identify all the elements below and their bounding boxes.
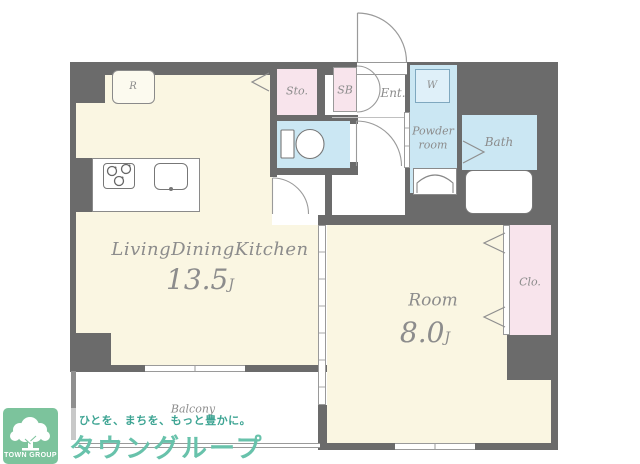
label-entrance: Ent.: [380, 87, 405, 99]
room-size-value: 8.0: [400, 316, 445, 349]
logo-box: TOWN GROUP: [3, 408, 58, 464]
label-storage: Sto.: [286, 86, 308, 97]
label-room-size: 8.0J: [400, 319, 450, 347]
label-closet: Clo.: [519, 277, 541, 288]
ldk-size-value: 13.5: [166, 263, 228, 296]
tree-icon: [3, 410, 58, 454]
sink-faucet-icon: [169, 187, 173, 191]
label-bath: Bath: [485, 136, 514, 148]
closet-folding-door-top-icon: [484, 233, 505, 253]
shoebox-doors-icon: [357, 66, 380, 112]
partition-ticks: [319, 252, 325, 387]
storage-folding-door-icon: [252, 73, 269, 91]
toilet-fixture-icon: [281, 130, 324, 159]
toilet-door-icon: [357, 121, 402, 166]
closet-folding-door-bottom-icon: [484, 307, 505, 327]
brand-company: タウングループ: [69, 428, 263, 464]
plan-symbols-layer: [0, 0, 640, 464]
stove-burners-icon: [108, 165, 131, 186]
label-washer: W: [427, 81, 437, 91]
bath-folding-door-icon: [463, 141, 484, 163]
washbasin-arch-icon: [417, 175, 453, 193]
brand-tagline: ひとを、まちを、もっと豊かに。: [79, 412, 251, 428]
label-fridge: R: [129, 82, 137, 92]
ldk-size-unit: J: [228, 277, 234, 293]
label-shoebox: SB: [337, 85, 353, 96]
entrance-door-icon: [358, 13, 407, 62]
label-ldk-name: LivingDiningKitchen: [111, 241, 308, 259]
floorplan-image: R Sto. SB Ent. W Powder room Bath Clo. L…: [0, 0, 640, 464]
label-powder-line2: room: [419, 140, 448, 151]
logo-text: TOWN GROUP: [3, 452, 58, 459]
label-room-name: Room: [408, 293, 457, 310]
powder-door-ticks: [405, 128, 409, 146]
label-powder-line1: Powder: [412, 126, 454, 137]
room-size-unit: J: [444, 330, 450, 346]
label-ldk-size: 13.5J: [166, 266, 234, 294]
ldk-door-icon: [273, 178, 309, 214]
